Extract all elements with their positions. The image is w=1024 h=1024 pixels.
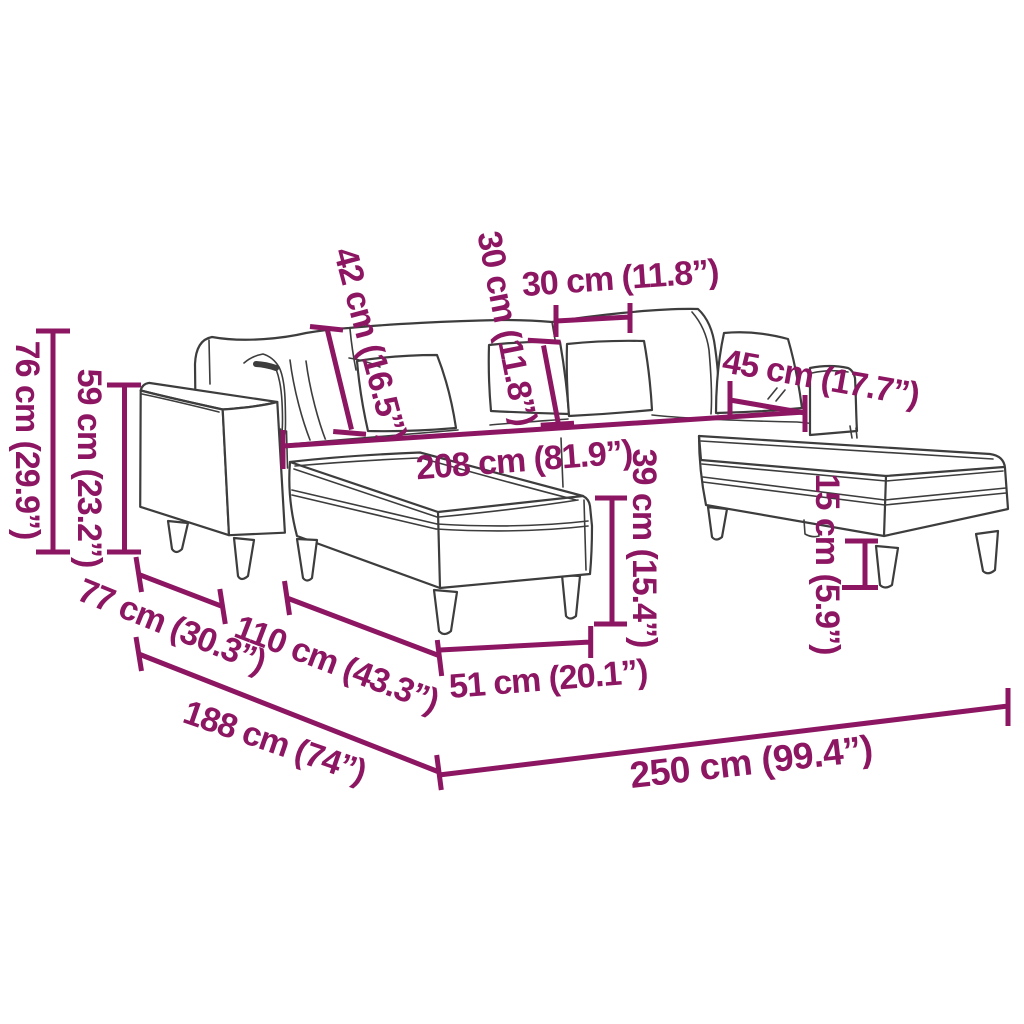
svg-text:39 cm (15.4”): 39 cm (15.4”): [625, 449, 663, 648]
svg-text:15 cm (5.9”): 15 cm (5.9”): [808, 474, 846, 655]
svg-text:76 cm (29.9”): 76 cm (29.9”): [8, 341, 46, 540]
svg-text:59 cm (23.2”): 59 cm (23.2”): [70, 369, 108, 568]
